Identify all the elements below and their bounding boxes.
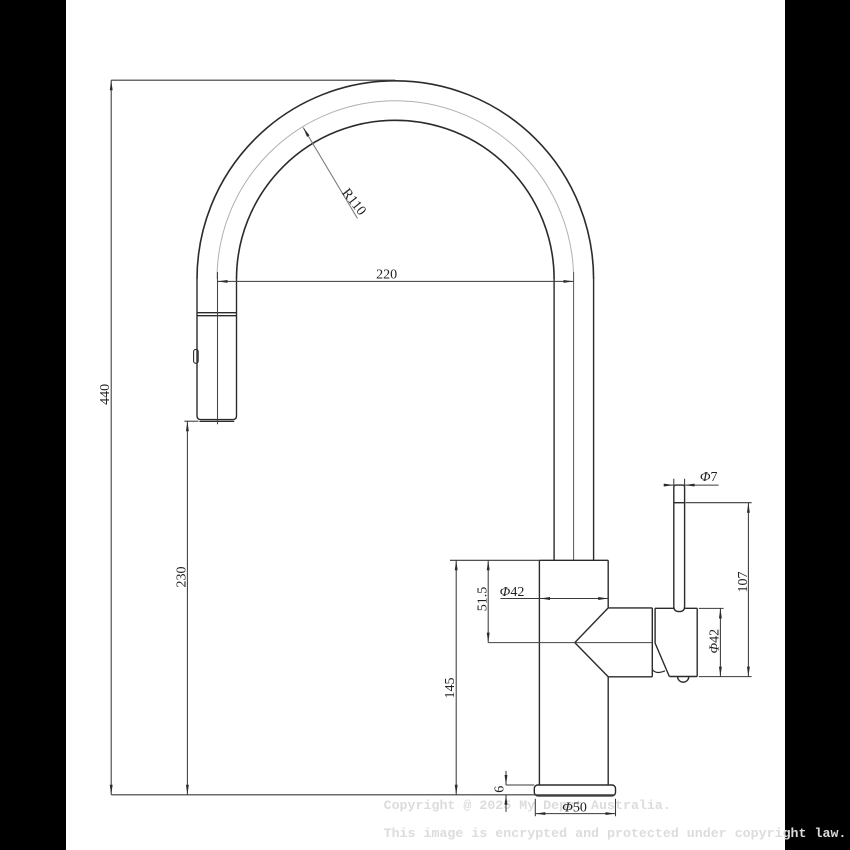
svg-text:107: 107 [736, 572, 751, 593]
svg-text:Φ50: Φ50 [562, 800, 587, 815]
svg-text:145: 145 [443, 678, 458, 699]
svg-text:Φ7: Φ7 [700, 470, 718, 485]
svg-text:R110: R110 [338, 186, 368, 219]
svg-text:Φ42: Φ42 [707, 629, 722, 654]
svg-text:230: 230 [174, 567, 189, 588]
svg-text:6: 6 [493, 786, 508, 793]
svg-text:440: 440 [98, 384, 113, 405]
svg-text:Φ42: Φ42 [500, 585, 525, 600]
svg-text:51.5: 51.5 [475, 587, 490, 612]
svg-text:220: 220 [376, 267, 397, 282]
